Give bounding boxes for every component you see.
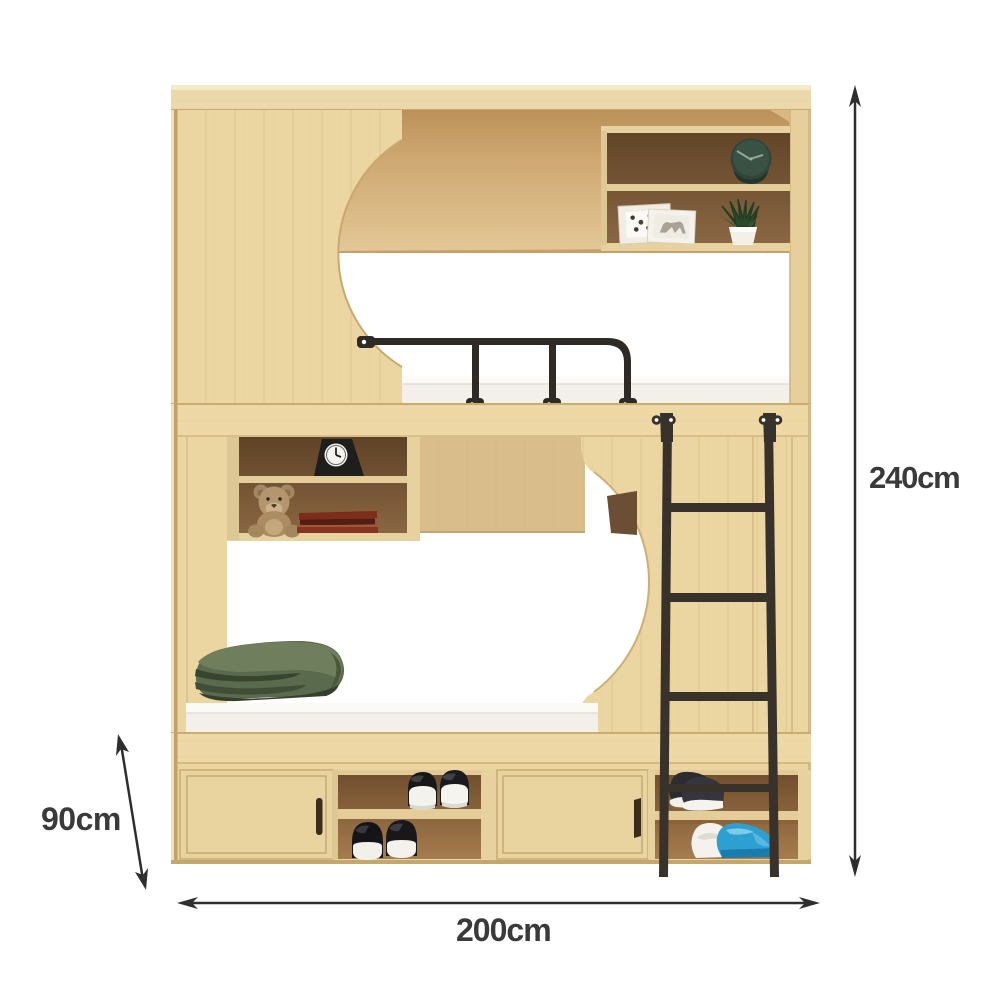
svg-text:240cm: 240cm <box>869 460 960 495</box>
svg-text:200cm: 200cm <box>456 912 551 948</box>
svg-text:90cm: 90cm <box>41 801 121 837</box>
